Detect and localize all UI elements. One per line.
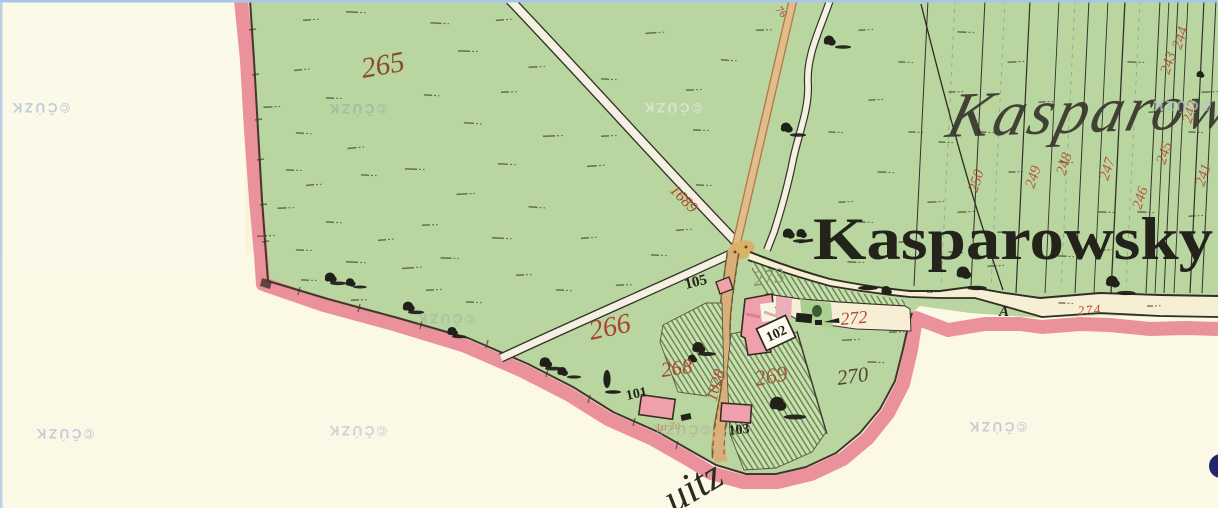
svg-text:103: 103 — [728, 422, 750, 439]
svg-text:Kasparowsky: Kasparowsky — [813, 206, 1213, 272]
svg-text:©ČÚZK: ©ČÚZK — [415, 311, 475, 326]
svg-text:©ČÚZK: ©ČÚZK — [1151, 98, 1211, 113]
svg-text:273: 273 — [751, 263, 786, 291]
svg-text:©ČÚZK: ©ČÚZK — [642, 100, 702, 115]
svg-text:©ČÚZK: ©ČÚZK — [10, 100, 70, 115]
svg-text:©ČÚZK: ©ČÚZK — [327, 423, 387, 438]
svg-text:©ČÚZK: ©ČÚZK — [34, 426, 94, 441]
svg-text:©ČÚZK: ©ČÚZK — [967, 419, 1027, 434]
svg-text:272: 272 — [840, 307, 869, 329]
svg-text:268: 268 — [659, 354, 694, 382]
svg-text:270: 270 — [835, 362, 870, 390]
svg-text:A: A — [998, 304, 1009, 320]
svg-text:274: 274 — [1077, 301, 1102, 318]
svg-text:©ČÚZK: ©ČÚZK — [651, 422, 711, 437]
svg-text:©ČÚZK: ©ČÚZK — [327, 101, 387, 116]
